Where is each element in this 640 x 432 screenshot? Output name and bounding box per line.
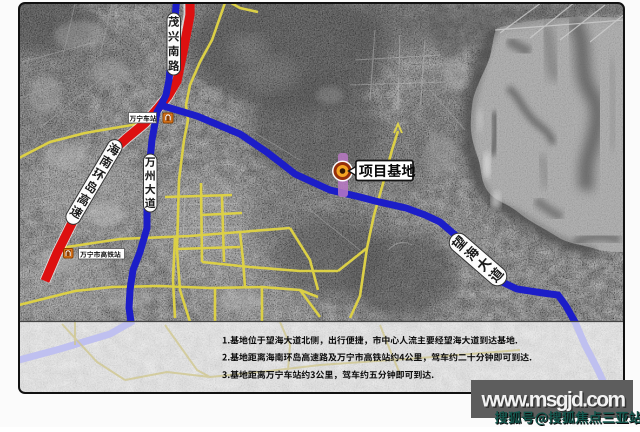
svg-text:www.msgjd.com: www.msgjd.com [481,389,626,412]
